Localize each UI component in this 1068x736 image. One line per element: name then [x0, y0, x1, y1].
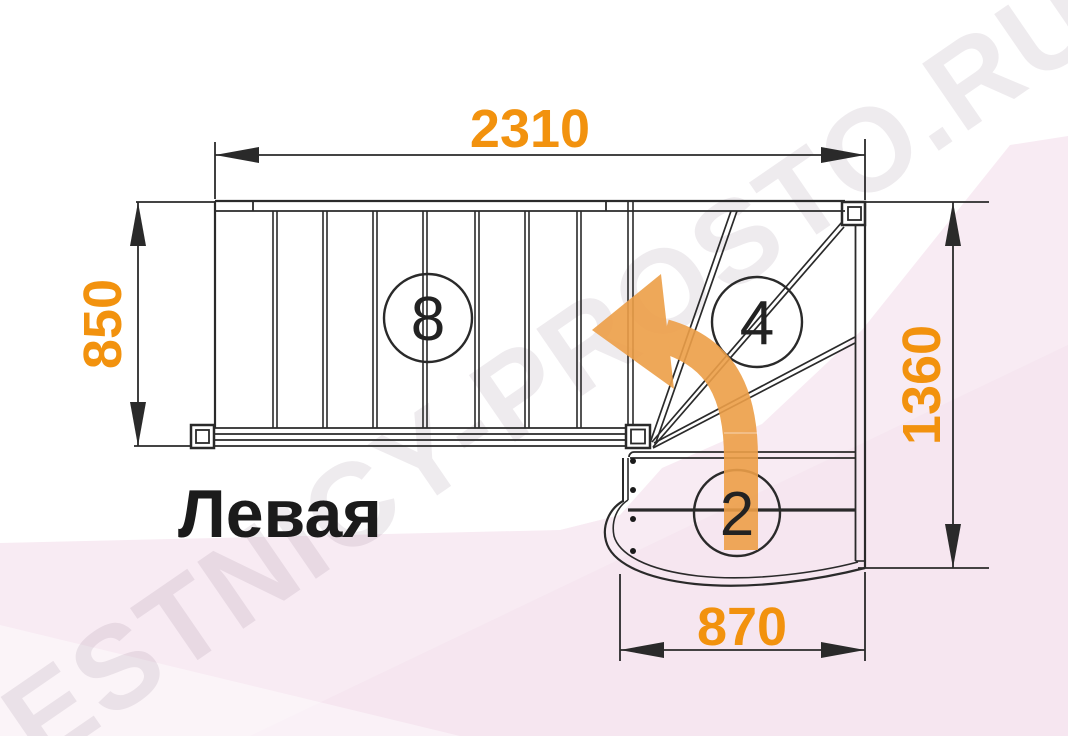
step-count-lower: 2 — [720, 480, 754, 549]
staircase-plan-diagram: LESTNICY-PROSTO.RU — [0, 0, 1068, 736]
step-count-upper: 8 — [411, 285, 445, 354]
dim-arrow-down — [130, 402, 146, 446]
dimension-left-depth: 850 — [73, 202, 215, 446]
dim-value-left: 850 — [73, 279, 133, 369]
left-newel-post — [191, 425, 214, 448]
dim-value-bottom: 870 — [697, 597, 787, 657]
dim-value-top: 2310 — [470, 99, 590, 159]
step-count-winder: 4 — [740, 289, 774, 358]
center-newel-post — [626, 425, 650, 448]
diagram-title: Левая — [178, 476, 382, 552]
dim-arrow-left — [215, 147, 259, 163]
dim-arrow-up — [130, 202, 146, 246]
dim-value-right: 1360 — [892, 325, 952, 445]
diagram-canvas: LESTNICY-PROSTO.RU — [0, 0, 1068, 736]
